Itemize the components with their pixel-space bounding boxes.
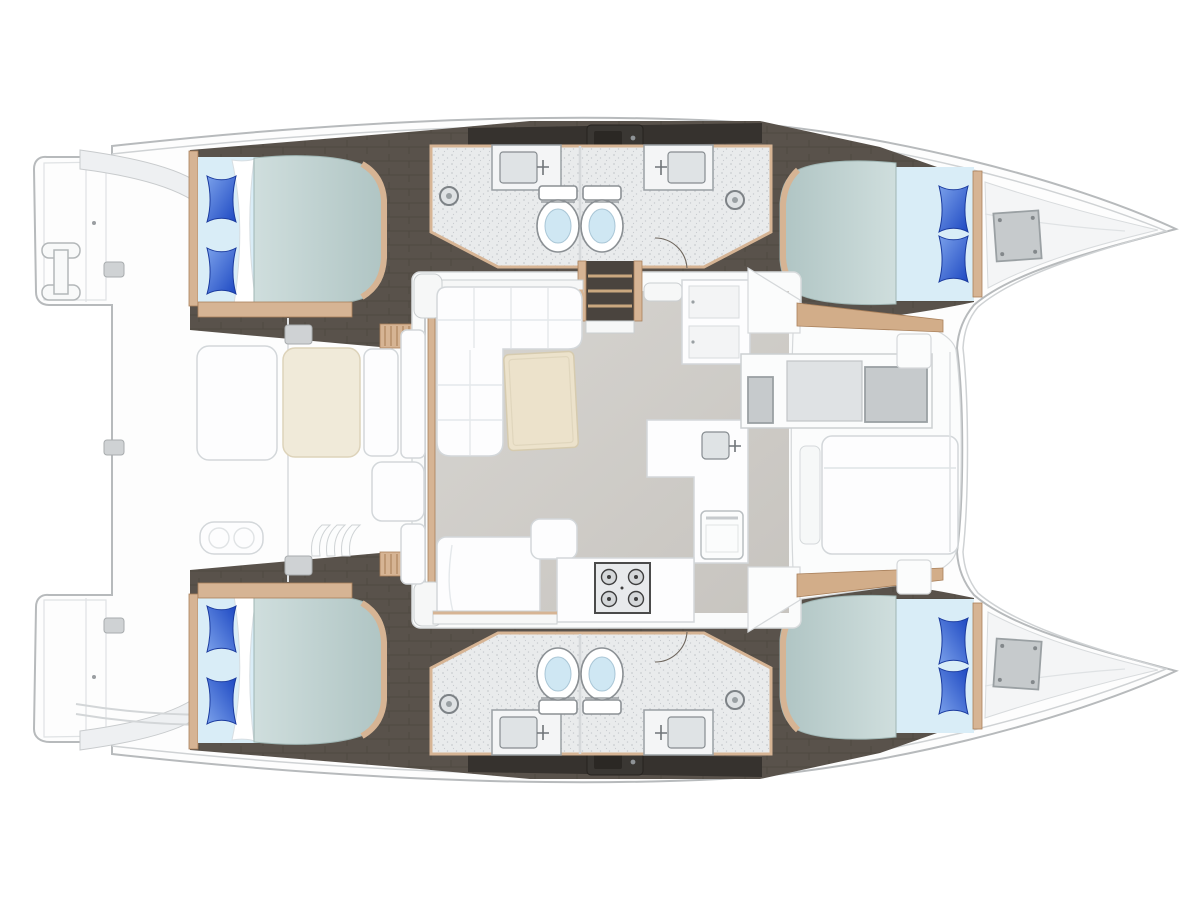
cleat [285, 556, 312, 575]
cockpit-table-cushion [283, 348, 360, 457]
berth-headboard [189, 151, 198, 306]
cockpit-corner-seat [372, 462, 424, 521]
cleat [285, 325, 312, 344]
pillow [207, 248, 236, 294]
berth-base [890, 167, 974, 301]
toilet [537, 186, 579, 252]
foredeck-lounger [800, 436, 958, 554]
deck-locker [897, 334, 931, 368]
pillow [939, 186, 968, 232]
bow-bulkhead [973, 171, 982, 297]
shower-drain [440, 187, 458, 205]
shower-drain [726, 191, 744, 209]
cleat [104, 440, 124, 455]
deck-locker [897, 560, 931, 594]
floor-plan-stage [0, 0, 1200, 900]
pillow [939, 236, 968, 282]
salon-ottoman [531, 519, 577, 559]
forward-cabin-berth [780, 161, 982, 305]
salon-pillar [644, 283, 682, 301]
floor-plan-canvas [0, 0, 1200, 900]
bathrooms [431, 145, 771, 267]
aft-cabin-berth [189, 151, 386, 317]
pillow [207, 176, 236, 222]
cockpit-wall-seat [401, 524, 425, 584]
toilet [581, 186, 623, 252]
cleat [104, 618, 124, 633]
deck-hatch [865, 367, 927, 422]
lounger-side-tray [800, 446, 820, 544]
cockpit-wall-seat [401, 330, 425, 458]
deck-fitting-dot [92, 221, 96, 225]
bathroom-sink-unit [492, 145, 561, 190]
deck-fitting-dot [92, 675, 96, 679]
deck-hatch [748, 377, 773, 423]
skylight-panel [787, 361, 862, 421]
salon-table [504, 351, 579, 451]
stove [595, 563, 650, 613]
cockpit-bench [364, 349, 398, 456]
cockpit-stool-pod [200, 522, 263, 554]
mattress [254, 156, 386, 308]
salon-staircase-port [578, 261, 642, 333]
cleat [104, 262, 124, 277]
cockpit-bench [197, 346, 277, 460]
salon [412, 261, 801, 628]
oven [701, 511, 743, 559]
bathroom-sink-unit [644, 145, 713, 190]
salon-aft-wall [428, 292, 435, 612]
berth-shelf [198, 302, 352, 317]
bow-hatch [993, 210, 1041, 261]
